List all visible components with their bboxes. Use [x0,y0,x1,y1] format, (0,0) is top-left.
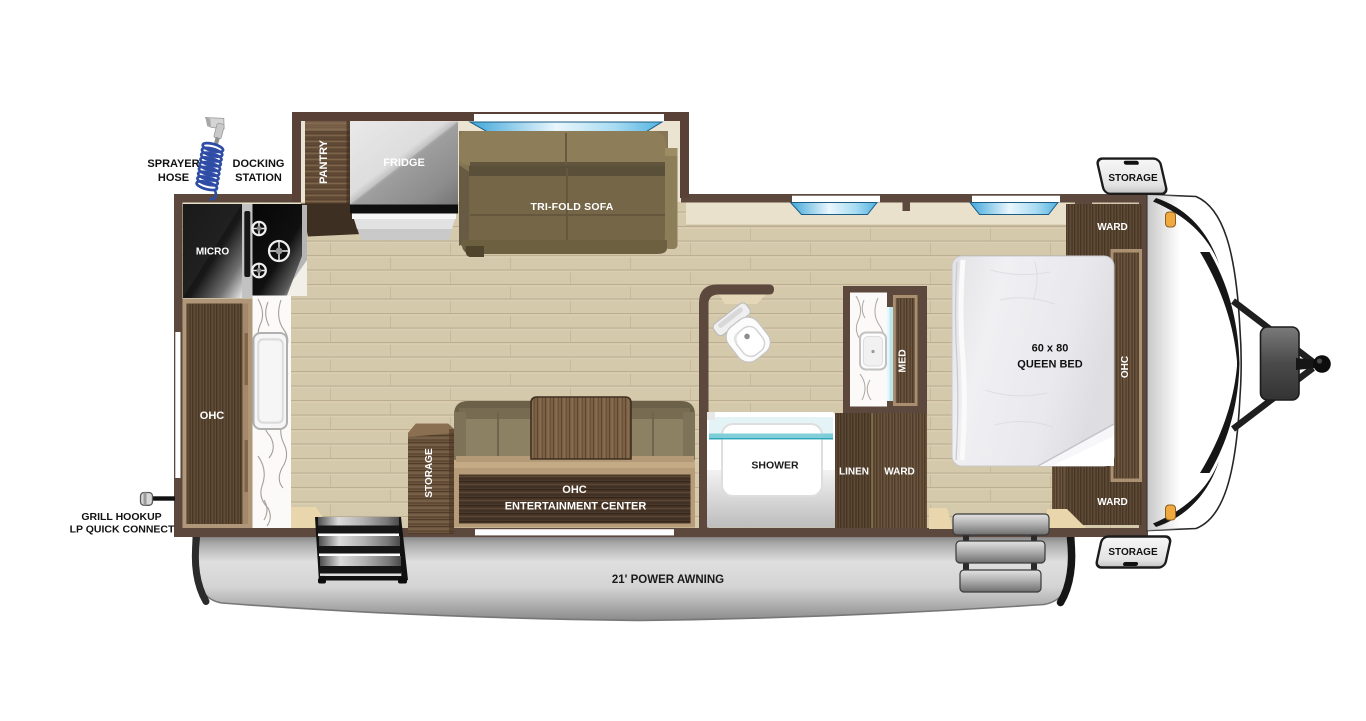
svg-text:WARD: WARD [884,467,915,478]
svg-text:OHC: OHC [200,410,225,422]
svg-text:TRI-FOLD SOFA: TRI-FOLD SOFA [530,201,613,213]
svg-text:STORAGE: STORAGE [1108,173,1158,184]
svg-text:STORAGE: STORAGE [424,448,435,498]
svg-text:ENTERTAINMENT CENTER: ENTERTAINMENT CENTER [505,501,647,513]
svg-text:OHC: OHC [562,484,587,496]
svg-text:QUEEN BED: QUEEN BED [1017,359,1082,371]
svg-text:HOSE: HOSE [158,172,189,184]
svg-text:WARD: WARD [1097,222,1128,233]
svg-text:MED: MED [897,349,909,373]
svg-text:60 x 80: 60 x 80 [1032,343,1069,355]
svg-text:DOCKING: DOCKING [233,158,285,170]
svg-text:OHC: OHC [1120,356,1131,378]
svg-text:PANTRY: PANTRY [318,139,330,184]
svg-text:LINEN: LINEN [839,467,869,478]
svg-text:FRIDGE: FRIDGE [383,157,425,169]
svg-text:STORAGE: STORAGE [1108,547,1158,558]
svg-text:MICRO: MICRO [196,247,230,258]
svg-text:STATION: STATION [235,172,282,184]
svg-text:LP QUICK CONNECT: LP QUICK CONNECT [70,524,175,536]
svg-text:SHOWER: SHOWER [751,460,799,472]
svg-text:21' POWER AWNING: 21' POWER AWNING [612,574,724,586]
svg-text:GRILL HOOKUP: GRILL HOOKUP [81,511,161,523]
svg-text:WARD: WARD [1097,497,1128,508]
svg-text:SPRAYER: SPRAYER [147,158,199,170]
